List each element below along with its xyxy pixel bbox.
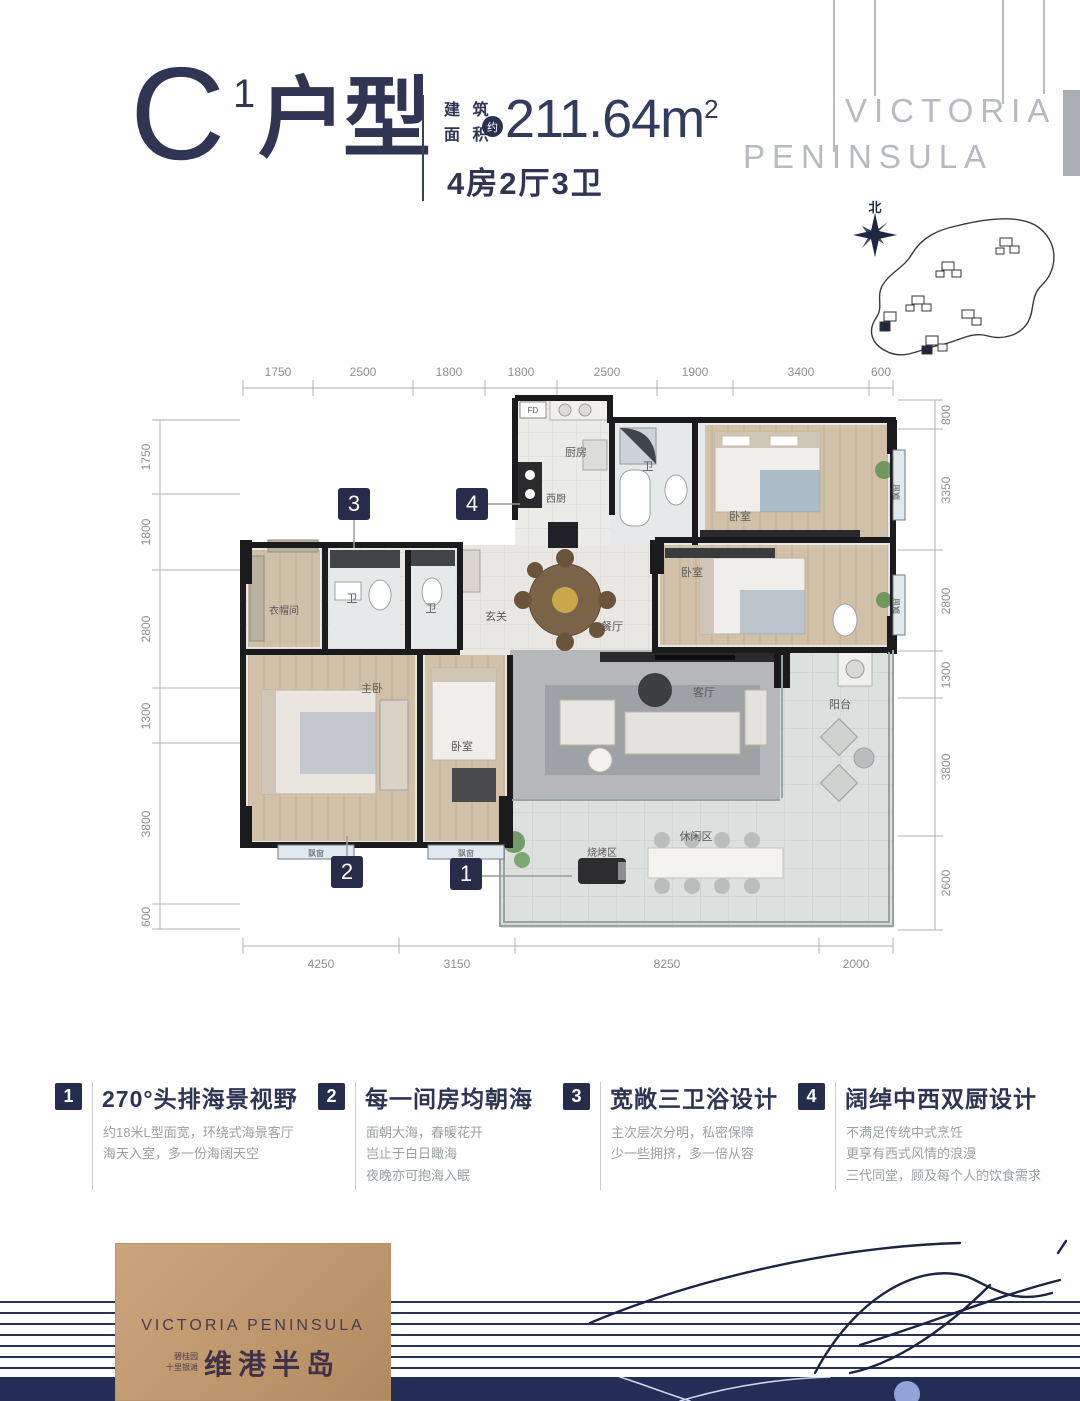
svg-text:2: 2 [341,859,353,884]
svg-text:4250: 4250 [308,957,335,971]
watermark-line [1043,0,1045,94]
header-divider [422,95,424,201]
watermark-victoria: VICTORIA [845,92,1056,130]
svg-text:3150: 3150 [444,957,471,971]
feature-1-desc: 约18米L型面宽，环绕式海景客厅 海天入室，多一份海阔天空 [103,1122,294,1165]
brand-logo-cn: 维港半岛 [204,1343,340,1383]
svg-text:阳台: 阳台 [829,697,851,711]
svg-text:2500: 2500 [594,365,621,379]
desc-line: 主次层次分明，私密保障 [611,1122,754,1143]
dimension-chain-bottom [243,938,893,954]
feature-1-divider [92,1082,93,1190]
svg-text:烧烤区: 烧烤区 [587,846,617,859]
area-value: 211.64m2 [505,88,718,150]
compass-rose-icon [853,213,897,257]
desc-line: 更享有西式风情的浪漫 [846,1143,1041,1164]
svg-text:600: 600 [139,907,153,927]
feature-2-divider [355,1082,356,1190]
svg-text:4: 4 [466,491,478,516]
svg-text:卫: 卫 [426,603,437,615]
unit-type-letter: C [130,48,221,180]
svg-text:2800: 2800 [139,615,153,642]
brand-logo-plate: VICTORIA PENINSULA 碧桂园 十里银滩 维港半岛 [115,1243,391,1401]
feature-4-desc: 不满足传统中式烹饪 更享有西式风情的浪漫 三代同堂，顾及每个人的饮食需求 [846,1122,1041,1186]
svg-text:卫: 卫 [643,461,654,473]
watermark-line [874,0,876,96]
signature-script [560,1225,1080,1375]
desc-line: 夜晚亦可抱海入眠 [366,1165,483,1186]
desc-line: 海天入室，多一份海阔天空 [103,1143,294,1164]
unit-type-suffix: 户型 [258,66,428,172]
feature-2-title: 每一间房均朝海 [365,1080,533,1114]
approx-badge: 约 [482,116,503,137]
marker-3: 3 [338,488,370,520]
feature-2-desc: 面朝大海，春暖花开 岂止于白日瞰海 夜晚亦可抱海入眠 [366,1122,483,1186]
svg-text:3800: 3800 [139,810,153,837]
floorplan: 1750 2500 1800 1800 2500 1900 3400 600 1… [130,330,1010,980]
feature-4-number: 4 [798,1083,825,1110]
svg-text:客厅: 客厅 [693,685,715,699]
brand-logo-en: VICTORIA PENINSULA [115,1317,391,1335]
dimension-chain-top [243,380,893,396]
svg-text:3800: 3800 [939,753,953,780]
svg-text:1300: 1300 [939,661,953,688]
svg-text:1800: 1800 [139,518,153,545]
svg-text:2000: 2000 [843,957,870,971]
svg-text:飘窗: 飘窗 [891,598,901,614]
svg-text:餐厅: 餐厅 [601,619,623,633]
dimension-labels-top: 1750 2500 1800 1800 2500 1900 3400 600 [265,365,892,379]
dimension-chain-left [152,420,240,929]
svg-text:800: 800 [939,405,953,425]
svg-text:玄关: 玄关 [485,609,507,623]
svg-text:1: 1 [460,861,472,886]
svg-text:西厨: 西厨 [546,493,566,505]
watermark-peninsula: PENINSULA [743,138,993,176]
desc-line: 约18米L型面宽，环绕式海景客厅 [103,1122,294,1143]
svg-text:厨房: 厨房 [565,446,587,459]
dimension-labels-bottom: 4250 3150 8250 2000 [308,957,870,971]
desc-line: 岂止于白日瞰海 [366,1143,483,1164]
feature-1-title: 270°头排海景视野 [102,1080,298,1114]
svg-text:1900: 1900 [682,365,709,379]
marker-2: 2 [331,856,363,888]
room-layout: 4房2厅3卫 [447,158,604,203]
unit-type-superscript: 1 [233,72,255,117]
svg-text:3: 3 [348,491,360,516]
svg-text:1750: 1750 [139,443,153,470]
svg-text:主卧: 主卧 [361,682,383,695]
area-number: 211.64m [505,89,704,149]
north-label: 北 [868,200,881,215]
svg-text:飘窗: 飘窗 [308,848,324,858]
watermark-line [833,0,835,152]
svg-text:卧室: 卧室 [451,739,473,753]
svg-text:飘窗: 飘窗 [891,484,901,500]
svg-text:卫: 卫 [347,593,358,605]
desc-line: 三代同堂，顾及每个人的饮食需求 [846,1165,1041,1186]
svg-text:1800: 1800 [436,365,463,379]
feature-4-divider [835,1082,836,1190]
svg-text:1300: 1300 [139,702,153,729]
svg-text:8250: 8250 [654,957,681,971]
feature-3-number: 3 [563,1083,590,1110]
marker-1: 1 [450,858,482,890]
svg-text:2600: 2600 [939,869,953,896]
marker-4: 4 [456,488,488,520]
svg-text:2800: 2800 [939,587,953,614]
svg-text:卧室: 卧室 [729,509,751,523]
svg-text:休闲区: 休闲区 [680,829,713,843]
feature-4-title: 阔绰中西双厨设计 [845,1080,1037,1114]
feature-1-number: 1 [55,1083,82,1110]
svg-text:1800: 1800 [508,365,535,379]
brand-logo-small-text: 碧桂园 十里银滩 [166,1352,198,1374]
feature-3-title: 宽敞三卫浴设计 [610,1080,778,1114]
area-sup: 2 [704,94,717,124]
svg-text:600: 600 [871,365,891,379]
desc-line: 少一些拥挤，多一倍从容 [611,1143,754,1164]
svg-text:3350: 3350 [939,476,953,503]
svg-text:卧室: 卧室 [681,565,703,579]
feature-2-number: 2 [318,1083,345,1110]
signature-script-footer [560,1377,1080,1401]
poster-page: C 1 户型 建 筑 面 积 约 211.64m2 4房2厅3卫 VICTORI… [0,0,1080,1401]
svg-text:2500: 2500 [350,365,377,379]
svg-text:衣帽间: 衣帽间 [269,604,299,617]
feature-3-divider [600,1082,601,1190]
svg-text:飘窗: 飘窗 [458,848,474,858]
feature-3-desc: 主次层次分明，私密保障 少一些拥挤，多一倍从容 [611,1122,754,1165]
dimension-labels-left: 1750 1800 2800 1300 3800 600 [139,443,153,927]
desc-line: 不满足传统中式烹饪 [846,1122,1041,1143]
watermark-edge-block [1063,90,1080,176]
watermark-line [1002,0,1004,104]
svg-text:1750: 1750 [265,365,292,379]
svg-text:FD: FD [528,406,539,415]
svg-text:3400: 3400 [788,365,815,379]
desc-line: 面朝大海，春暖花开 [366,1122,483,1143]
